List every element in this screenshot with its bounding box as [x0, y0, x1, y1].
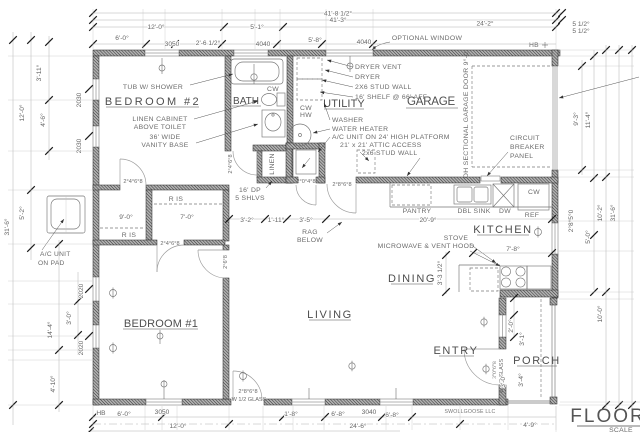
svg-text:MICROWAVE & VENT HOOD: MICROWAVE & VENT HOOD: [378, 243, 475, 250]
svg-text:2020: 2020: [78, 340, 85, 355]
svg-text:DRYER VENT: DRYER VENT: [355, 64, 402, 71]
svg-text:PANTRY: PANTRY: [403, 208, 432, 215]
svg-text:3'-5°: 3'-5°: [299, 216, 313, 224]
svg-text:4040: 4040: [357, 39, 372, 46]
svg-text:DBL SINK: DBL SINK: [457, 208, 490, 215]
svg-text:11'-4°: 11'-4°: [584, 111, 592, 128]
svg-text:2'-0°: 2'-0°: [507, 319, 515, 333]
svg-text:W 1/2 GLASS: W 1/2 GLASS: [232, 397, 267, 403]
svg-text:3040: 3040: [362, 409, 377, 416]
svg-text:RAG: RAG: [302, 229, 318, 236]
svg-text:6'-0°: 6'-0°: [117, 410, 131, 418]
svg-text:4'-9°: 4'-9°: [523, 421, 537, 429]
svg-text:2°4°6°8: 2°4°6°8: [228, 154, 234, 173]
svg-text:BEDROOM #1: BEDROOM #1: [124, 318, 198, 330]
svg-text:12'-0°: 12'-0°: [147, 23, 164, 31]
svg-text:WASHER: WASHER: [332, 117, 363, 124]
svg-text:24'-6°: 24'-6°: [349, 422, 366, 430]
svg-text:BEDROOM #2: BEDROOM #2: [105, 96, 201, 108]
svg-text:HB: HB: [96, 410, 106, 417]
svg-text:ENTRY: ENTRY: [433, 345, 478, 357]
svg-text:31'-6°: 31'-6°: [609, 204, 617, 221]
svg-text:VANITY BASE: VANITY BASE: [141, 142, 188, 149]
svg-text:DINING: DINING: [388, 273, 436, 285]
svg-text:LIVING: LIVING: [307, 309, 353, 321]
svg-text:4040: 4040: [256, 41, 271, 48]
svg-text:2'-6 1/2°: 2'-6 1/2°: [196, 39, 221, 47]
svg-text:2°0°4°8: 2°0°4°8: [296, 179, 315, 185]
svg-text:3'-4°: 3'-4°: [517, 373, 525, 387]
svg-text:12'-0°: 12'-0°: [169, 422, 186, 430]
svg-text:PORCH: PORCH: [513, 355, 561, 367]
svg-text:4'-6°: 4'-6°: [39, 113, 47, 127]
svg-text:2X6 STUD WALL: 2X6 STUD WALL: [355, 84, 412, 91]
svg-text:3'-11°: 3'-11°: [35, 64, 43, 81]
svg-text:SWOLLGOOSE LLC: SWOLLGOOSE LLC: [445, 409, 496, 415]
svg-text:CW: CW: [267, 86, 279, 93]
svg-text:41'-3°: 41'-3°: [329, 16, 346, 24]
svg-text:3050: 3050: [165, 41, 180, 48]
svg-text:DRYER: DRYER: [355, 74, 380, 81]
svg-text:DW: DW: [499, 208, 511, 215]
svg-text:31'-6°: 31'-6°: [3, 218, 11, 235]
svg-text:5'-8°: 5'-8°: [308, 36, 322, 44]
svg-text:REF: REF: [525, 212, 540, 219]
svg-text:ON PAD: ON PAD: [38, 260, 65, 267]
svg-text:9'-0°: 9'-0°: [119, 213, 133, 221]
svg-text:6'-8°: 6'-8°: [385, 411, 399, 419]
svg-text:LINEN: LINEN: [269, 153, 276, 175]
svg-text:CIRCUIT: CIRCUIT: [510, 135, 540, 142]
svg-text:2°8°6°8: 2°8°6°8: [238, 389, 257, 395]
svg-text:7'-0°: 7'-0°: [180, 213, 194, 221]
svg-text:2°8°6°8: 2°8°6°8: [332, 182, 351, 188]
svg-text:HB: HB: [529, 42, 539, 49]
svg-text:3°0°6°8: 3°0°6°8: [491, 361, 498, 379]
svg-text:2x6 STUD WALL: 2x6 STUD WALL: [362, 150, 417, 157]
svg-text:KITCHEN: KITCHEN: [473, 224, 532, 236]
svg-text:5 1/2°: 5 1/2°: [572, 27, 590, 35]
svg-text:12'-0°: 12'-0°: [18, 104, 26, 121]
svg-text:PANEL: PANEL: [510, 153, 533, 160]
svg-text:10'-0°: 10'-0°: [596, 305, 604, 322]
svg-text:5'-0°: 5'-0°: [584, 230, 592, 244]
svg-text:5'-1°: 5'-1°: [250, 23, 264, 31]
svg-text:OH SECTIONAL GARAGE DOOR 9°-0: OH SECTIONAL GARAGE DOOR 9°-0: [462, 52, 470, 179]
svg-text:2°4°6°8: 2°4°6°8: [123, 179, 142, 185]
svg-text:4'-10°: 4'-10°: [49, 375, 57, 392]
svg-text:3'-1°: 3'-1°: [518, 332, 526, 346]
svg-text:TUB W/ SHOWER: TUB W/ SHOWER: [123, 84, 183, 91]
svg-text:BELOW: BELOW: [297, 237, 323, 244]
svg-text:7'-8°: 7'-8°: [506, 245, 520, 253]
svg-text:LINEN CABINET: LINEN CABINET: [132, 116, 187, 123]
svg-text:OPTIONAL WINDOW: OPTIONAL WINDOW: [392, 35, 463, 42]
svg-text:2°4°6°8: 2°4°6°8: [160, 241, 179, 247]
svg-text:5'-2°: 5'-2°: [18, 206, 26, 220]
svg-text:R IS: R IS: [122, 232, 137, 239]
svg-text:3'-0°: 3'-0°: [65, 311, 73, 325]
svg-text:16' DP: 16' DP: [239, 187, 261, 194]
svg-text:20'-9°: 20'-9°: [419, 216, 436, 224]
svg-text:3'-2°: 3'-2°: [240, 216, 254, 224]
svg-text:FLOOR: FLOOR: [570, 406, 640, 427]
svg-text:5 1/2°: 5 1/2°: [572, 20, 590, 28]
svg-text:CW: CW: [300, 105, 312, 112]
svg-text:SCALE: SCALE: [609, 427, 633, 432]
svg-text:36' WIDE: 36' WIDE: [150, 134, 181, 141]
svg-text:9'-3°: 9'-3°: [572, 112, 580, 126]
svg-text:A/C UNIT: A/C UNIT: [40, 251, 71, 258]
svg-text:10'-2°: 10'-2°: [596, 204, 604, 221]
svg-text:1'-11°: 1'-11°: [268, 216, 285, 224]
svg-text:A/C UNIT ON 24' HIGH PLATFORM: A/C UNIT ON 24' HIGH PLATFORM: [332, 134, 450, 141]
svg-text:2020: 2020: [78, 283, 85, 298]
svg-text:3'-0°: 3'-0°: [499, 374, 507, 388]
svg-text:ABOVE TOILET: ABOVE TOILET: [134, 124, 186, 131]
svg-text:2°6°8: 2°6°8: [223, 255, 229, 269]
svg-text:HW: HW: [300, 112, 312, 119]
svg-text:3'-3 1/2°: 3'-3 1/2°: [436, 260, 444, 285]
svg-text:16' SHELF @ 66' AFF: 16' SHELF @ 66' AFF: [355, 94, 427, 101]
svg-text:WATER HEATER: WATER HEATER: [332, 126, 388, 133]
svg-text:STOVE: STOVE: [444, 235, 469, 242]
svg-text:5 SHLVS: 5 SHLVS: [235, 195, 265, 202]
svg-text:6'-0°: 6'-0°: [115, 34, 129, 42]
svg-text:BREAKER: BREAKER: [510, 144, 545, 151]
svg-text:1'-8°: 1'-8°: [284, 410, 298, 418]
svg-text:21' x 21' ATTIC ACCESS: 21' x 21' ATTIC ACCESS: [340, 142, 422, 149]
svg-text:CW: CW: [528, 189, 540, 196]
svg-text:24'-2°: 24'-2°: [476, 20, 493, 28]
svg-text:R IS: R IS: [169, 196, 184, 203]
svg-text:6'-8°: 6'-8°: [331, 410, 345, 418]
